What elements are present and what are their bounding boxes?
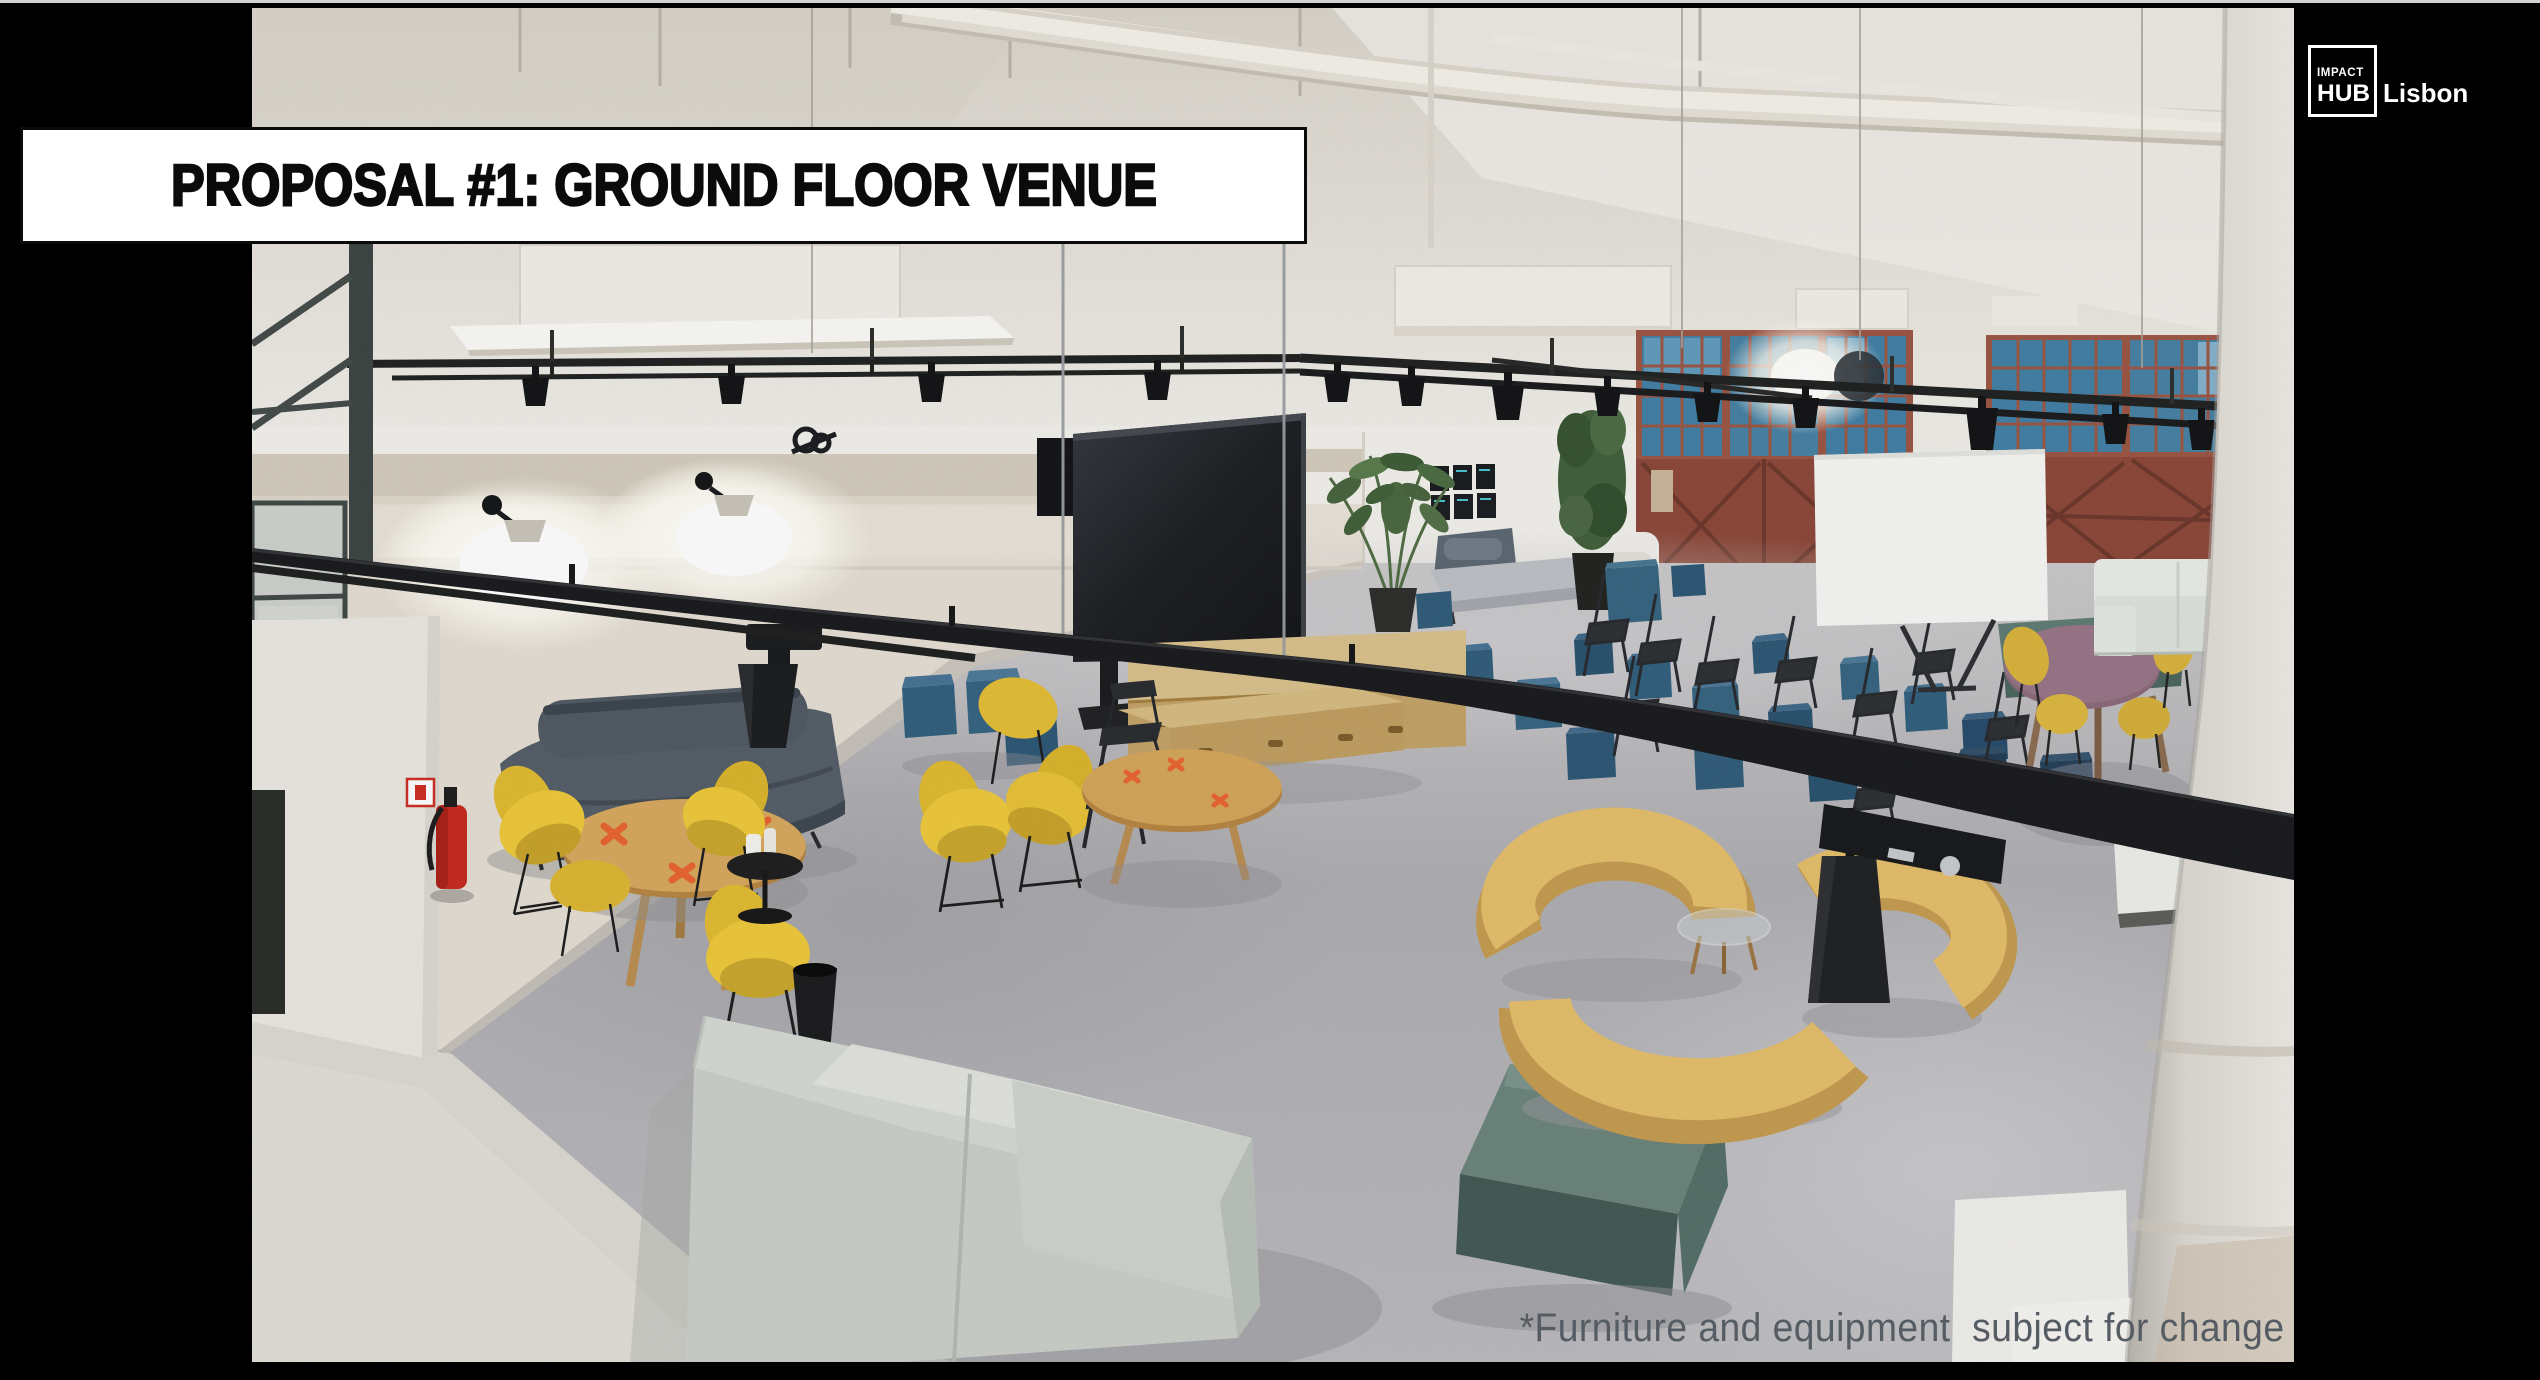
svg-text:IMPACT: IMPACT bbox=[2317, 67, 2364, 79]
svg-text:HUB: HUB bbox=[2317, 80, 2370, 107]
svg-text:Lisbon: Lisbon bbox=[2383, 78, 2468, 108]
